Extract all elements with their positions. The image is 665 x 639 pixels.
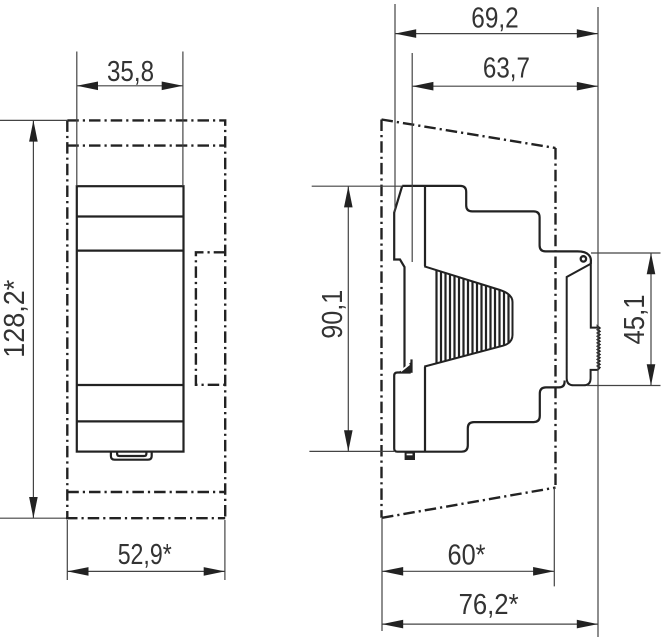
svg-text:60*: 60* xyxy=(448,540,486,572)
svg-text:69,2: 69,2 xyxy=(471,3,518,35)
svg-text:35,8: 35,8 xyxy=(107,56,154,88)
svg-text:45,1: 45,1 xyxy=(619,295,651,345)
svg-text:52,9*: 52,9* xyxy=(118,539,172,571)
svg-text:90,1: 90,1 xyxy=(317,290,349,339)
svg-text:63,7: 63,7 xyxy=(483,53,530,85)
svg-text:128,2*: 128,2* xyxy=(0,280,31,358)
svg-text:76,2*: 76,2* xyxy=(459,589,519,621)
